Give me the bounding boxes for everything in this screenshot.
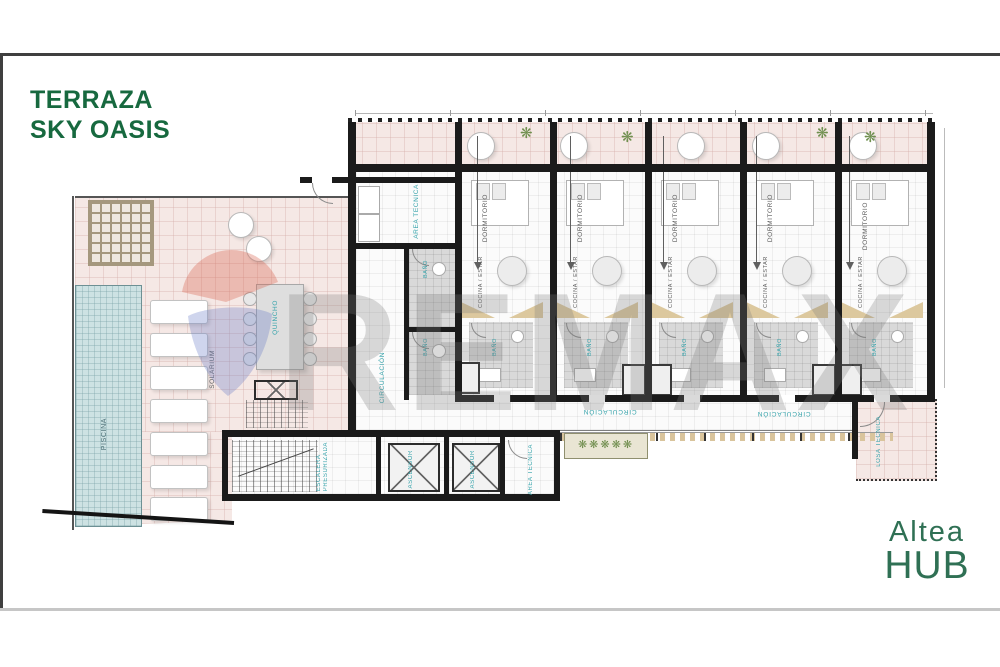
- ascensor-label: ASCENSOR: [408, 450, 414, 488]
- counter: [889, 302, 923, 318]
- chair: [243, 312, 257, 326]
- pillow: [777, 183, 791, 200]
- closet-niche: [622, 364, 646, 396]
- bano-label: BAÑO: [493, 338, 499, 356]
- wall: [645, 122, 652, 402]
- toilet: [606, 330, 619, 343]
- pergola: [88, 200, 154, 266]
- wall: [852, 397, 935, 402]
- unit-arrow-head: [567, 262, 575, 270]
- toilet: [701, 330, 714, 343]
- unit-arrow-head: [660, 262, 668, 270]
- bano-label: BAÑO: [588, 338, 594, 356]
- lounge-chair: [246, 236, 272, 262]
- escalera-label: ESCALERA PRESURIZADA: [316, 442, 329, 491]
- sink-counter: [358, 214, 380, 242]
- quincho-label: QUINCHO: [273, 300, 280, 335]
- dimension-line-top: [355, 110, 933, 116]
- chair: [303, 292, 317, 306]
- door-gap: [779, 395, 795, 402]
- dining-table: [497, 256, 527, 286]
- brand-logo: Altea HUB: [872, 518, 982, 584]
- sunbed: [150, 333, 208, 357]
- frame-border-left: [0, 53, 3, 610]
- terrace-edge-dotted: [348, 118, 935, 122]
- wall: [444, 437, 449, 494]
- page-title: TERRAZA SKY OASIS: [30, 85, 170, 145]
- pillow: [587, 183, 601, 200]
- bed: [756, 180, 814, 226]
- wall: [554, 430, 560, 501]
- wall: [222, 430, 560, 437]
- elevator-shaft: [452, 443, 500, 492]
- pillow: [856, 183, 870, 200]
- escalera-label-line1: ESCALERA: [316, 442, 322, 491]
- bano-label: BAÑO: [424, 338, 430, 356]
- plant-icon: ❋: [816, 126, 829, 141]
- pillow: [682, 183, 696, 200]
- shower: [859, 368, 881, 382]
- door-gap: [589, 395, 605, 402]
- lounge-chair: [228, 212, 254, 238]
- elevator-shaft: [388, 443, 440, 492]
- counter: [604, 302, 638, 318]
- counter: [699, 302, 733, 318]
- chair: [243, 332, 257, 346]
- frame-border-top: [0, 53, 1000, 56]
- unit-column: DORMITORIO COCINA / ESTAR BAÑO MONOAMBIE…: [550, 172, 645, 395]
- wall: [835, 122, 842, 402]
- piscina-label: PISCINA: [101, 418, 108, 450]
- counter: [509, 302, 543, 318]
- plant-icon: ❋: [621, 130, 634, 145]
- shower: [669, 368, 691, 382]
- toilet: [432, 262, 446, 276]
- ascensor-label: ASCENSOR: [470, 450, 476, 488]
- sunbed: [150, 399, 208, 423]
- pillow: [492, 183, 506, 200]
- cocina-estar-label: COCINA / ESTAR: [859, 256, 865, 308]
- shower: [764, 368, 786, 382]
- toilet: [511, 330, 524, 343]
- dormitorio-label: DORMITORIO: [483, 194, 490, 242]
- pool: [75, 285, 142, 527]
- page-title-line1: TERRAZA: [30, 85, 170, 115]
- area-tecnica-label: AREA TECNICA: [414, 184, 421, 239]
- wall: [376, 437, 381, 494]
- door-gap: [312, 177, 332, 183]
- chair: [303, 312, 317, 326]
- terrace-table: [560, 132, 588, 160]
- wall: [500, 437, 505, 494]
- closet-niche: [812, 364, 836, 396]
- bed: [471, 180, 529, 226]
- dormitorio-label: DORMITORIO: [578, 194, 585, 242]
- terrace-table: [467, 132, 495, 160]
- door-gap: [874, 395, 890, 402]
- unit-arrow: [756, 136, 757, 264]
- circulacion-label: CIRCULACIÓN: [380, 352, 387, 403]
- cocina-estar-label: COCINA / ESTAR: [669, 256, 675, 308]
- unit-arrow: [663, 136, 664, 264]
- stairs: [232, 440, 318, 492]
- wall: [409, 327, 456, 332]
- page-title-line2: SKY OASIS: [30, 115, 170, 145]
- sunbed: [150, 366, 208, 390]
- wall: [927, 122, 935, 402]
- dimension-line-right: [944, 128, 945, 388]
- bed: [661, 180, 719, 226]
- door-gap: [684, 395, 700, 402]
- dormitorio-label: DORMITORIO: [863, 202, 870, 250]
- bano-label: BAÑO: [683, 338, 689, 356]
- dormitorio-label: DORMITORIO: [768, 194, 775, 242]
- losa-tecnica-label: LOSA TECNICA: [876, 416, 882, 467]
- wall: [222, 494, 560, 501]
- bed: [851, 180, 909, 226]
- chair: [243, 352, 257, 366]
- bed: [566, 180, 624, 226]
- toilet: [891, 330, 904, 343]
- page: TERRAZA SKY OASIS PISCINA SOLARIUM QUINC…: [0, 0, 1000, 667]
- brand-line1: Altea: [872, 518, 982, 547]
- dining-table: [592, 256, 622, 286]
- circulacion-corridor-label: CIRCULACIÓN: [757, 410, 811, 417]
- terrace-boundary-left: [72, 196, 74, 530]
- dining-table: [877, 256, 907, 286]
- plant-icon: ❋: [864, 130, 877, 145]
- sunbed: [150, 432, 208, 456]
- circulacion-corridor-label: CIRCULACIÓN: [583, 408, 637, 415]
- stairs: [246, 400, 308, 428]
- sunbed: [150, 465, 208, 489]
- bano-label: BAÑO: [424, 260, 430, 278]
- shower: [479, 368, 501, 382]
- terrace-top-edge: [75, 196, 348, 198]
- cocina-estar-label: COCINA / ESTAR: [764, 256, 770, 308]
- sink-counter: [358, 186, 380, 214]
- unit-column: DORMITORIO COCINA / ESTAR BAÑO MONOAMBIE…: [740, 172, 835, 395]
- wall: [740, 122, 747, 402]
- building-terrace-strip: [348, 122, 935, 166]
- unit-arrow: [477, 136, 478, 264]
- quincho-table: [256, 284, 304, 370]
- unit-arrow: [849, 136, 850, 264]
- wall: [222, 430, 228, 501]
- wall: [348, 122, 356, 432]
- toilet: [432, 344, 446, 358]
- unit-arrow-head: [753, 262, 761, 270]
- chair: [303, 352, 317, 366]
- brand-line2: HUB: [872, 547, 982, 584]
- escalera-label-line2: PRESURIZADA: [323, 442, 329, 491]
- toilet: [796, 330, 809, 343]
- area-tecnica-2-label: AREA TECNICA: [528, 444, 534, 495]
- dining-table: [782, 256, 812, 286]
- wall: [404, 243, 409, 400]
- shower: [574, 368, 596, 382]
- unit-arrow-head: [846, 262, 854, 270]
- door-gap: [494, 395, 510, 402]
- bano-label: BAÑO: [873, 338, 879, 356]
- chair: [303, 332, 317, 346]
- chair: [243, 292, 257, 306]
- dining-table: [687, 256, 717, 286]
- sunbed: [150, 300, 208, 324]
- grill: [254, 380, 298, 400]
- pillow: [872, 183, 886, 200]
- solarium-label: SOLARIUM: [210, 350, 217, 389]
- wall: [550, 122, 557, 402]
- terrace-table: [677, 132, 705, 160]
- counter: [794, 302, 828, 318]
- unit-arrow: [570, 136, 571, 264]
- dormitorio-label: DORMITORIO: [673, 194, 680, 242]
- unit-column: DORMITORIO COCINA / ESTAR BAÑO MONOAMBIE…: [645, 172, 740, 395]
- wall: [852, 397, 858, 459]
- unit-arrow-head: [474, 262, 482, 270]
- wall: [455, 122, 462, 402]
- planter: ❋❋❋❋❋: [564, 433, 648, 459]
- frame-border-bottom: [0, 608, 1000, 611]
- wall: [348, 164, 935, 172]
- bano-label: BAÑO: [778, 338, 784, 356]
- plant-icon: ❋: [520, 126, 533, 141]
